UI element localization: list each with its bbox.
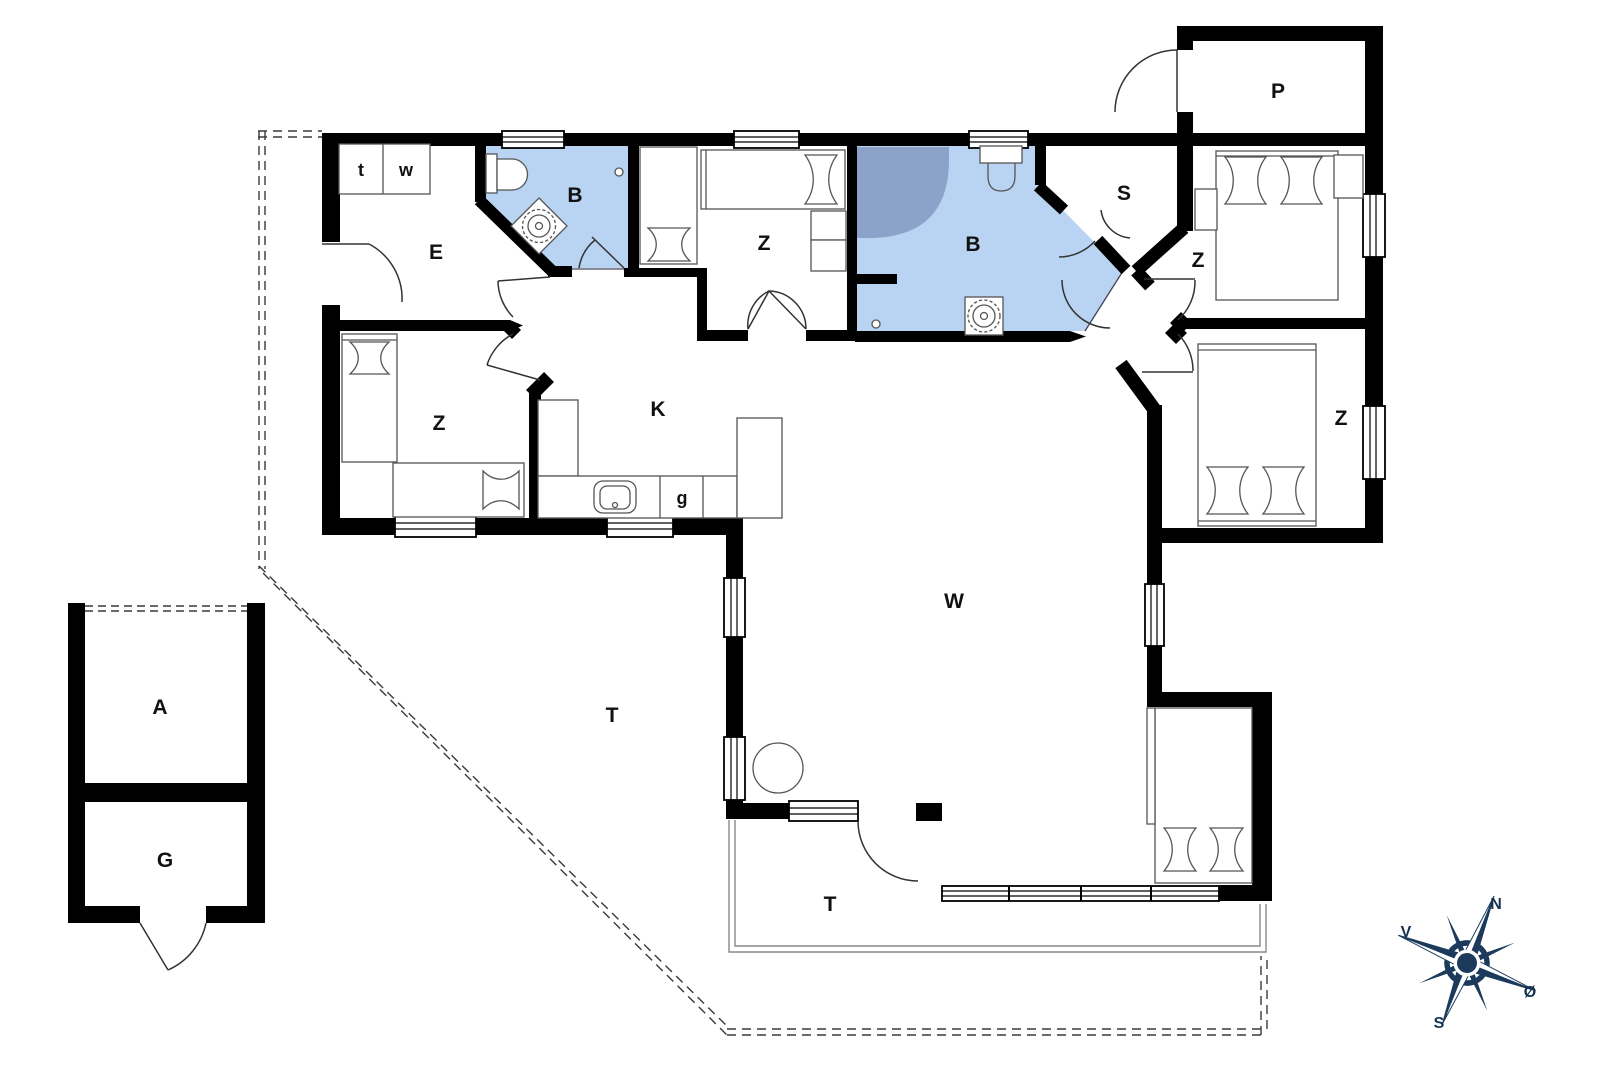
svg-text:P: P xyxy=(1271,80,1285,103)
svg-text:E: E xyxy=(429,241,443,264)
svg-text:V: V xyxy=(1401,924,1412,941)
svg-text:Z: Z xyxy=(1335,407,1348,430)
svg-text:K: K xyxy=(650,398,665,421)
svg-text:T: T xyxy=(824,893,837,916)
svg-text:W: W xyxy=(944,590,964,613)
svg-text:S: S xyxy=(1117,182,1131,205)
svg-text:Ø: Ø xyxy=(1524,984,1536,1001)
svg-text:Z: Z xyxy=(758,232,771,255)
svg-text:G: G xyxy=(157,849,173,872)
svg-text:N: N xyxy=(1490,896,1502,913)
svg-text:T: T xyxy=(606,704,619,727)
svg-text:S: S xyxy=(1434,1015,1445,1032)
svg-text:w: w xyxy=(398,160,414,180)
svg-text:B: B xyxy=(965,233,980,256)
svg-text:B: B xyxy=(567,184,582,207)
svg-text:Z: Z xyxy=(1192,249,1205,272)
svg-text:A: A xyxy=(152,696,167,719)
svg-text:t: t xyxy=(358,160,364,180)
svg-text:Z: Z xyxy=(433,412,446,435)
svg-text:g: g xyxy=(677,488,688,508)
